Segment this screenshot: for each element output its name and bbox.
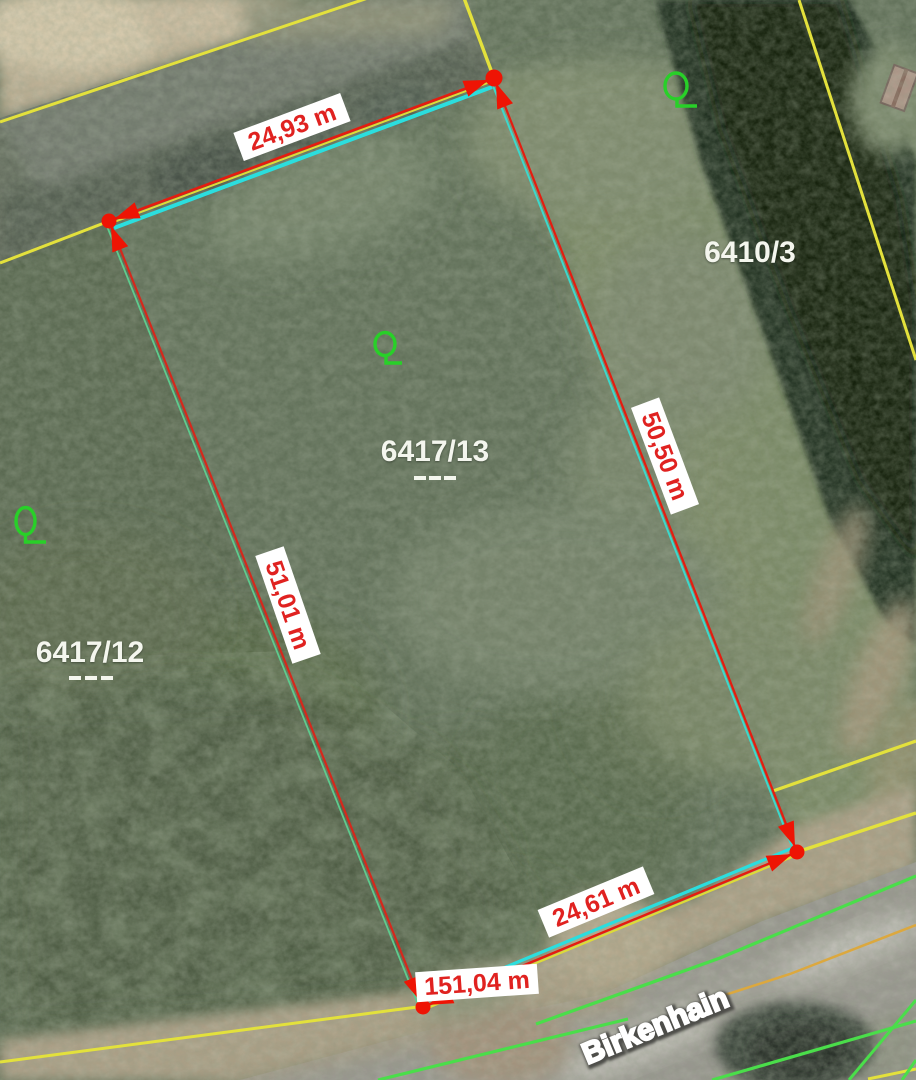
svg-text:6410/3: 6410/3 [704, 236, 796, 269]
svg-text:6417/13: 6417/13 [381, 435, 489, 468]
svg-text:6417/12: 6417/12 [36, 636, 144, 669]
